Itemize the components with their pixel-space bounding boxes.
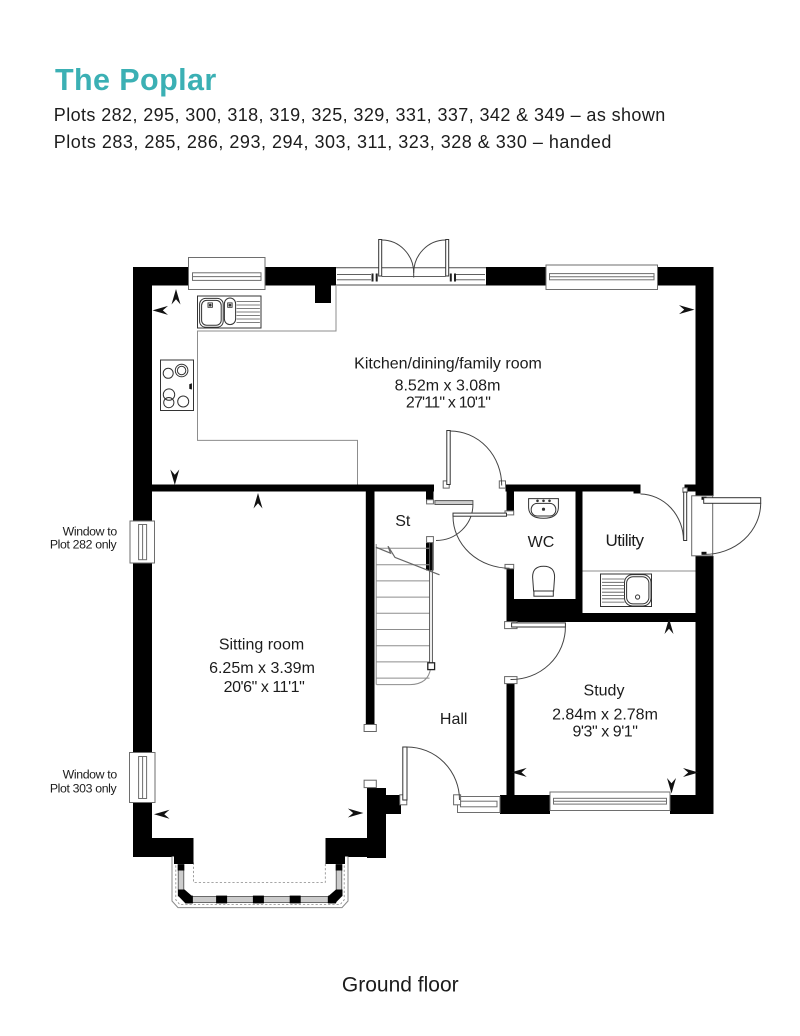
svg-text:Sitting room: Sitting room <box>219 637 304 654</box>
svg-text:20'6" x 11'1": 20'6" x 11'1" <box>224 679 305 696</box>
svg-text:Ground floor: Ground floor <box>342 974 459 997</box>
svg-text:Window to: Window to <box>63 524 118 538</box>
svg-text:Plots 282, 295, 300, 318, 319,: Plots 282, 295, 300, 318, 319, 325, 329,… <box>54 105 666 125</box>
svg-text:Plot 303 only: Plot 303 only <box>50 782 118 796</box>
svg-text:Plot 282 only: Plot 282 only <box>50 538 118 552</box>
svg-text:27'11" x 10'1": 27'11" x 10'1" <box>406 394 490 411</box>
svg-text:Hall: Hall <box>440 711 468 728</box>
svg-text:The Poplar: The Poplar <box>55 63 217 97</box>
svg-text:2.84m x 2.78m: 2.84m x 2.78m <box>552 707 658 724</box>
svg-text:Study: Study <box>584 683 625 700</box>
svg-text:Kitchen/dining/family room: Kitchen/dining/family room <box>354 356 542 373</box>
svg-text:Window to: Window to <box>63 768 118 782</box>
svg-text:WC: WC <box>528 534 555 551</box>
svg-text:Plots 283, 285, 286, 293, 294,: Plots 283, 285, 286, 293, 294, 303, 311,… <box>54 132 612 152</box>
svg-text:St: St <box>395 513 411 530</box>
svg-text:8.52m x 3.08m: 8.52m x 3.08m <box>395 377 501 394</box>
svg-text:9'3" x 9'1": 9'3" x 9'1" <box>572 724 637 741</box>
svg-text:6.25m x 3.39m: 6.25m x 3.39m <box>209 660 315 677</box>
svg-text:Utility: Utility <box>605 531 644 550</box>
